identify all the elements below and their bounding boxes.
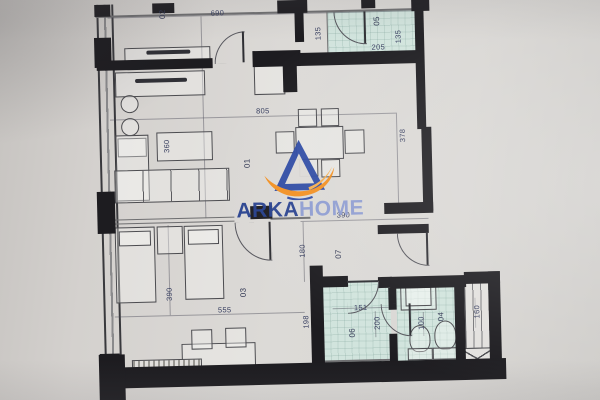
wall-segment bbox=[389, 334, 398, 362]
logo-word-arka: ARKA bbox=[236, 198, 299, 223]
dim-label: 378 bbox=[398, 129, 407, 143]
sofa bbox=[114, 168, 230, 204]
wall-segment bbox=[94, 5, 110, 17]
dimension-line bbox=[110, 113, 396, 121]
dining-chair bbox=[298, 109, 317, 127]
dim-label: 160 bbox=[472, 305, 481, 319]
dim-label: 198 bbox=[301, 315, 310, 329]
stool bbox=[121, 118, 139, 136]
cabinet bbox=[254, 64, 286, 95]
wall-segment bbox=[298, 50, 420, 66]
floorplan-photo: 01 02 03 04 05 06 07 690 135 205 135 805… bbox=[0, 0, 600, 400]
pillow bbox=[188, 229, 219, 245]
room-label-04: 04 bbox=[436, 312, 445, 322]
wall-segment bbox=[421, 127, 433, 211]
wall-segment bbox=[488, 271, 502, 371]
dim-label: 135 bbox=[393, 30, 402, 44]
dining-chair bbox=[321, 108, 339, 126]
wall-segment bbox=[384, 202, 433, 214]
stool bbox=[120, 95, 138, 113]
room-label-05: 05 bbox=[372, 16, 381, 26]
bedroom-door-arc bbox=[235, 222, 273, 262]
dim-label: 805 bbox=[256, 106, 270, 115]
pillow bbox=[119, 231, 151, 247]
bidet-bowl bbox=[434, 320, 457, 350]
wall-segment bbox=[361, 0, 375, 8]
dim-label: 390 bbox=[165, 287, 174, 301]
wall-segment bbox=[97, 58, 213, 71]
kitchen-door-arc bbox=[214, 31, 246, 64]
sideboard bbox=[115, 70, 206, 97]
room-label-06: 06 bbox=[348, 328, 357, 338]
arkahome-logo-icon bbox=[262, 137, 335, 201]
room-label-03: 03 bbox=[239, 288, 248, 298]
wall-segment bbox=[99, 354, 126, 400]
hall-door-arc bbox=[397, 233, 430, 267]
dim-label: 200 bbox=[372, 316, 381, 330]
toilet-tank bbox=[408, 348, 433, 361]
dim-label: 151 bbox=[354, 303, 368, 312]
dimension-line bbox=[396, 113, 399, 209]
logo-word-home: HOME bbox=[299, 196, 365, 221]
dim-label: 135 bbox=[313, 27, 322, 41]
nightstand bbox=[157, 226, 184, 255]
wall-segment bbox=[97, 192, 116, 234]
wall-segment bbox=[283, 60, 298, 92]
arkahome-watermark: ARKAHOME bbox=[229, 136, 371, 223]
wall-segment bbox=[322, 276, 348, 288]
floorplan: 01 02 03 04 05 06 07 690 135 205 135 805… bbox=[0, 0, 600, 400]
dim-label: 100 bbox=[416, 316, 425, 330]
dim-label: 690 bbox=[211, 8, 225, 17]
dim-label: 180 bbox=[298, 244, 307, 258]
dim-label: 205 bbox=[371, 42, 385, 51]
dim-label: 555 bbox=[218, 305, 232, 314]
desk-chair bbox=[225, 327, 246, 348]
desk-chair bbox=[191, 329, 212, 350]
room-label-02: 02 bbox=[158, 9, 167, 19]
arkahome-logo-text: ARKAHOME bbox=[230, 196, 371, 223]
wall-segment bbox=[414, 0, 426, 129]
wall-segment bbox=[294, 8, 304, 42]
dim-label: 360 bbox=[162, 139, 171, 153]
room-label-07: 07 bbox=[334, 249, 343, 259]
dimension-line bbox=[115, 312, 305, 318]
